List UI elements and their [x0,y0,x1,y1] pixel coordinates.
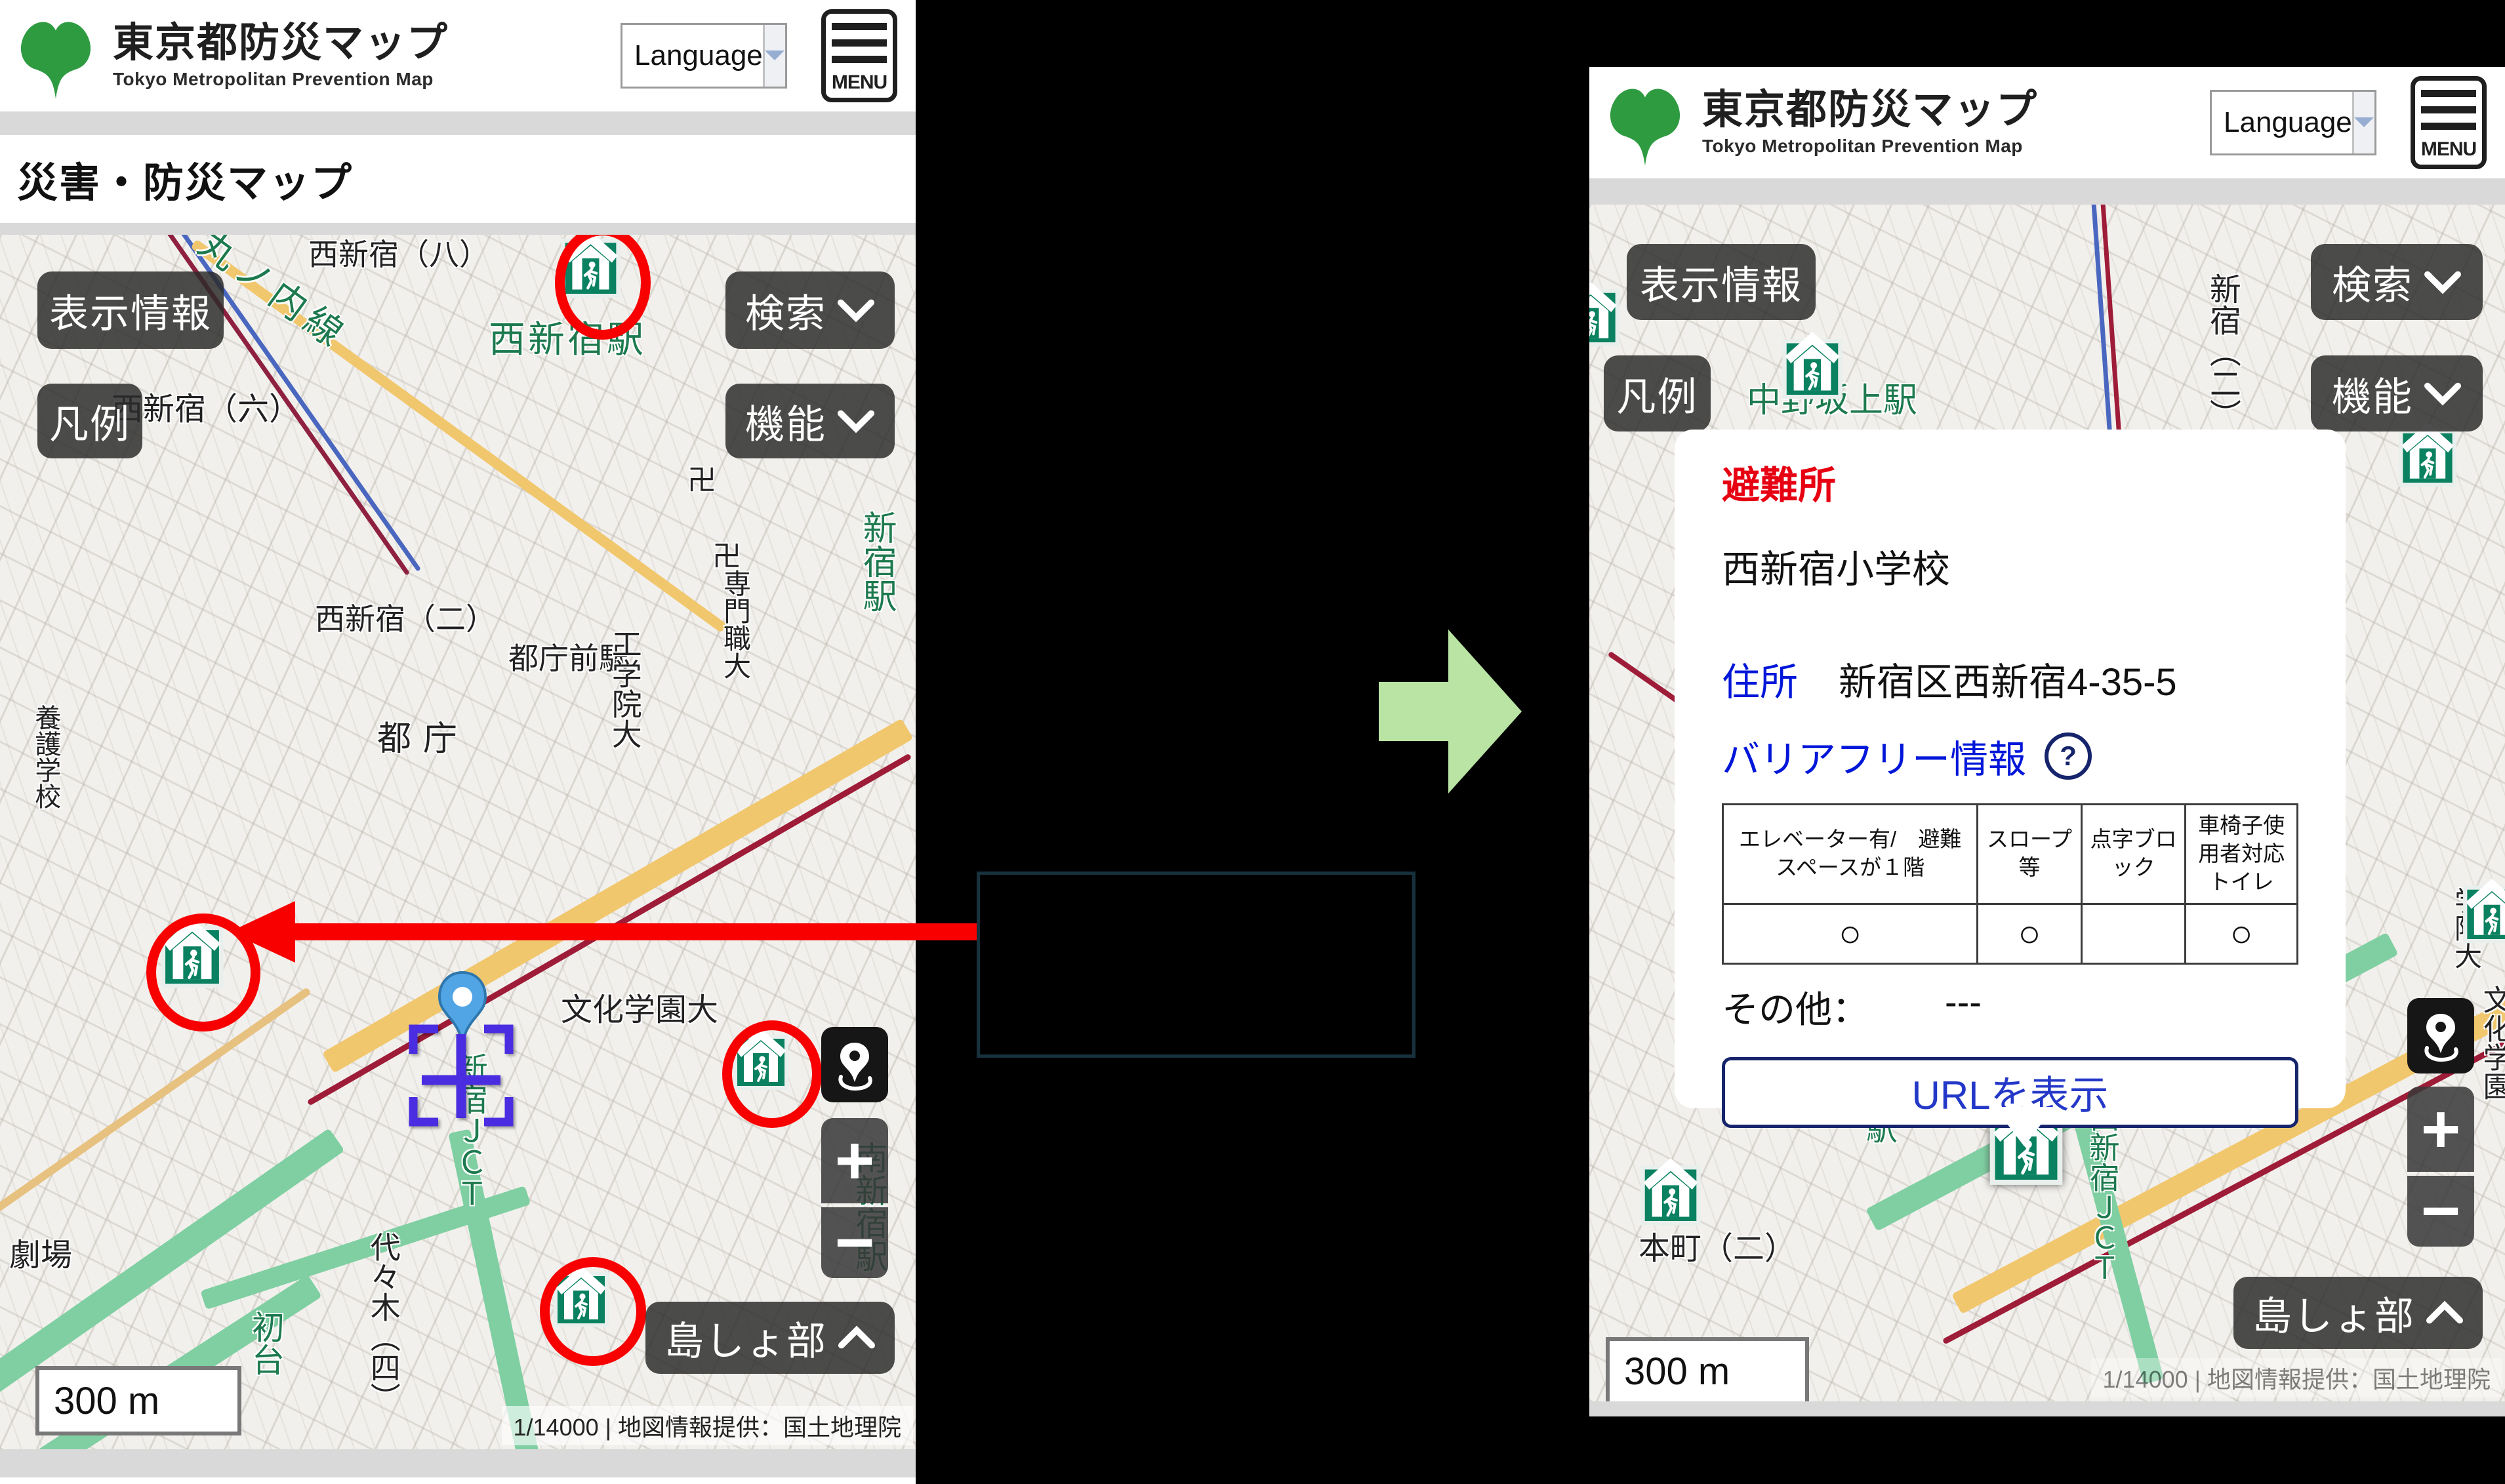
map-label: 西新宿ＪＣＴ [2087,1102,2119,1283]
map-attribution: 1/14000 | 地図情報提供：国土地理院 [2091,1358,2503,1397]
chevron-up-icon [838,1325,876,1351]
table-value-cell: ○ [1978,904,2082,963]
islands-button[interactable]: 島しょ部 [645,1302,895,1374]
popup-other-label: その他： [1722,980,1869,1033]
popup-category: 避難所 [1722,454,2298,510]
shelter-icon[interactable] [2462,879,2505,944]
table-value-cell [2081,904,2186,963]
table-header-cell: スロープ等 [1978,805,2082,904]
divider [0,223,916,235]
popup-address-value: 新宿区西新宿4-35-5 [1839,651,2177,706]
map-label: 卍 [687,466,716,496]
zoom-out-glyph: − [835,1209,875,1277]
table-header-cell: 点字ブロック [2081,805,2186,904]
menu-button-label: MENU [2421,138,2476,161]
functions-button[interactable]: 機能 [725,384,895,458]
display-info-label: 表示情報 [49,282,212,339]
search-label: 検索 [2332,254,2413,311]
map-label: 代々木（四） [367,1232,399,1413]
page-title: 災害・防災マップ [17,150,353,209]
table-header-cell: 車椅子使用者対応トイレ [2186,805,2298,904]
screenshot-canvas: 東京都防災マップ Tokyo Metropolitan Prevention M… [0,0,2505,1484]
zoom-out-glyph: − [2421,1177,2461,1245]
map-label: 文化学園 [2479,985,2505,1100]
chevron-down-icon [837,297,875,323]
map-attribution: 1/14000 | 地図情報提供：国土地理院 [502,1406,914,1445]
map-label: 工学院大 [609,628,641,749]
islands-label: 島しょ部 [664,1310,827,1367]
app-title-block: 東京都防災マップ Tokyo Metropolitan Prevention M… [113,22,449,89]
map-label: 卍 [712,542,741,572]
table-value-cell: ○ [1723,904,1978,963]
map-scale: 300 m [35,1366,241,1435]
popup-address-row: 住所 新宿区西新宿4-35-5 [1722,651,2298,706]
map-label: 劇場 [9,1239,72,1273]
map-scale: 300 m [1606,1337,1809,1401]
right-map[interactable]: 表示情報 凡例 検索 機能 + − 島しょ部 [1589,205,2505,1401]
map-label: 専門職大 [720,569,750,679]
display-info-button[interactable]: 表示情報 [1627,244,1816,320]
menu-button[interactable]: MENU [821,9,897,102]
menu-button[interactable]: MENU [2411,76,2487,169]
search-label: 検索 [745,282,826,339]
islands-label: 島しょ部 [2252,1285,2415,1342]
functions-button[interactable]: 機能 [2311,355,2483,431]
popup-other-value: --- [1945,980,1982,1033]
help-icon[interactable]: ? [2045,732,2092,780]
tokyo-ginkgo-logo-icon [1606,78,1684,167]
popup-other-row: その他： --- [1722,980,2298,1033]
annotation-red-arrow-head-icon [230,901,295,963]
shelter-icon[interactable] [2397,422,2458,488]
barrier-free-table: エレベーター有/ 避難スペースが１階スロープ等点字ブロック車椅子使用者対応トイレ… [1722,803,2298,965]
zoom-out-button[interactable]: − [2407,1176,2474,1247]
page-heading-bar: 災害・防災マップ [0,135,916,223]
chevron-down-icon [2424,269,2462,295]
display-info-label: 表示情報 [1640,254,1802,311]
shelter-icon[interactable] [1639,1158,1702,1227]
divider [0,111,916,135]
divider [1589,178,2505,205]
table-header-cell: エレベーター有/ 避難スペースが１階 [1723,805,1978,904]
crosshair-icon [405,1020,517,1131]
annotation-highlight-box [977,872,1415,1058]
divider [1589,1401,2505,1416]
shelter-icon[interactable] [1589,282,1621,348]
language-select-value: Language [2212,92,2352,153]
map-label: 都庁 [377,721,469,757]
app-title: 東京都防災マップ [1702,89,2038,131]
left-app-panel: 東京都防災マップ Tokyo Metropolitan Prevention M… [0,0,916,1484]
popup-barrierfree-row: バリアフリー情報 ? [1722,729,2298,784]
app-header: 東京都防災マップ Tokyo Metropolitan Prevention M… [1589,67,2505,178]
search-button[interactable]: 検索 [2311,244,2483,320]
location-pin-icon [832,1039,878,1091]
language-dropdown-arrow-icon [763,25,785,87]
location-pin-icon [2418,1010,2464,1062]
current-location-button[interactable] [821,1027,888,1102]
table-value-cell: ○ [2186,904,2298,963]
map-label: 養護学校 [31,704,59,809]
map-label: 本町（二） [1639,1233,1796,1266]
map-label: 文化学園大 [561,994,718,1028]
legend-button[interactable]: 凡例 [1604,355,1711,431]
functions-label: 機能 [745,393,826,450]
app-subtitle: Tokyo Metropolitan Prevention Map [113,69,449,90]
chevron-up-icon [2426,1300,2464,1326]
tokyo-ginkgo-logo-icon [17,11,94,100]
functions-label: 機能 [2332,365,2413,422]
popup-shelter-name: 西新宿小学校 [1722,538,2298,593]
popup-tail [1994,1107,2054,1146]
right-app-panel: 東京都防災マップ Tokyo Metropolitan Prevention M… [1589,67,2505,1416]
menu-icon [832,23,887,30]
annotation-green-arrow-icon [1379,630,1522,793]
search-button[interactable]: 検索 [725,271,895,349]
language-select[interactable]: Language [2210,90,2376,155]
app-header: 東京都防災マップ Tokyo Metropolitan Prevention M… [0,0,916,111]
legend-button[interactable]: 凡例 [37,384,142,458]
map-label: 新宿駅 [858,510,894,612]
zoom-in-glyph: + [835,1127,875,1195]
current-location-button[interactable] [2407,998,2474,1073]
islands-button[interactable]: 島しょ部 [2233,1277,2483,1349]
map-label: 西新宿（八） [308,239,489,271]
divider [0,1449,916,1477]
app-title: 東京都防災マップ [113,22,449,64]
shelter-icon[interactable] [1781,332,1844,401]
zoom-in-button[interactable]: + [2407,1087,2474,1172]
menu-button-label: MENU [832,71,887,94]
language-select[interactable]: Language [621,23,787,89]
app-title-block: 東京都防災マップ Tokyo Metropolitan Prevention M… [1702,89,2038,156]
chevron-down-icon [2424,380,2462,407]
popup-barrierfree-label: バリアフリー情報 [1722,729,2026,784]
left-map[interactable]: 表示情報 凡例 検索 機能 + − 島しょ部 [0,235,916,1449]
annotation-red-circle [722,1020,822,1128]
zoom-out-button[interactable]: − [821,1207,888,1278]
shelter-popup: 避難所 西新宿小学校 住所 新宿区西新宿4-35-5 バリアフリー情報 ? エレ… [1675,430,2346,1108]
language-select-value: Language [622,25,763,87]
map-scale-label: 300 m [1624,1350,1730,1394]
menu-icon [2421,90,2476,97]
zoom-in-glyph: + [2421,1095,2461,1163]
zoom-in-button[interactable]: + [821,1118,888,1203]
display-info-button[interactable]: 表示情報 [37,271,224,349]
map-scale-label: 300 m [54,1379,159,1423]
map-label: 初台 [248,1310,283,1376]
legend-label: 凡例 [1617,365,1698,422]
popup-address-label: 住所 [1722,651,1798,706]
legend-label: 凡例 [49,393,131,450]
app-subtitle: Tokyo Metropolitan Prevention Map [1702,136,2038,157]
annotation-red-circle [540,1257,646,1366]
map-label: 西新宿（二） [315,603,496,635]
map-label: 新宿（二） [2205,273,2238,430]
chevron-down-icon [837,408,875,434]
annotation-red-arrow [289,923,977,940]
language-dropdown-arrow-icon [2352,92,2374,153]
